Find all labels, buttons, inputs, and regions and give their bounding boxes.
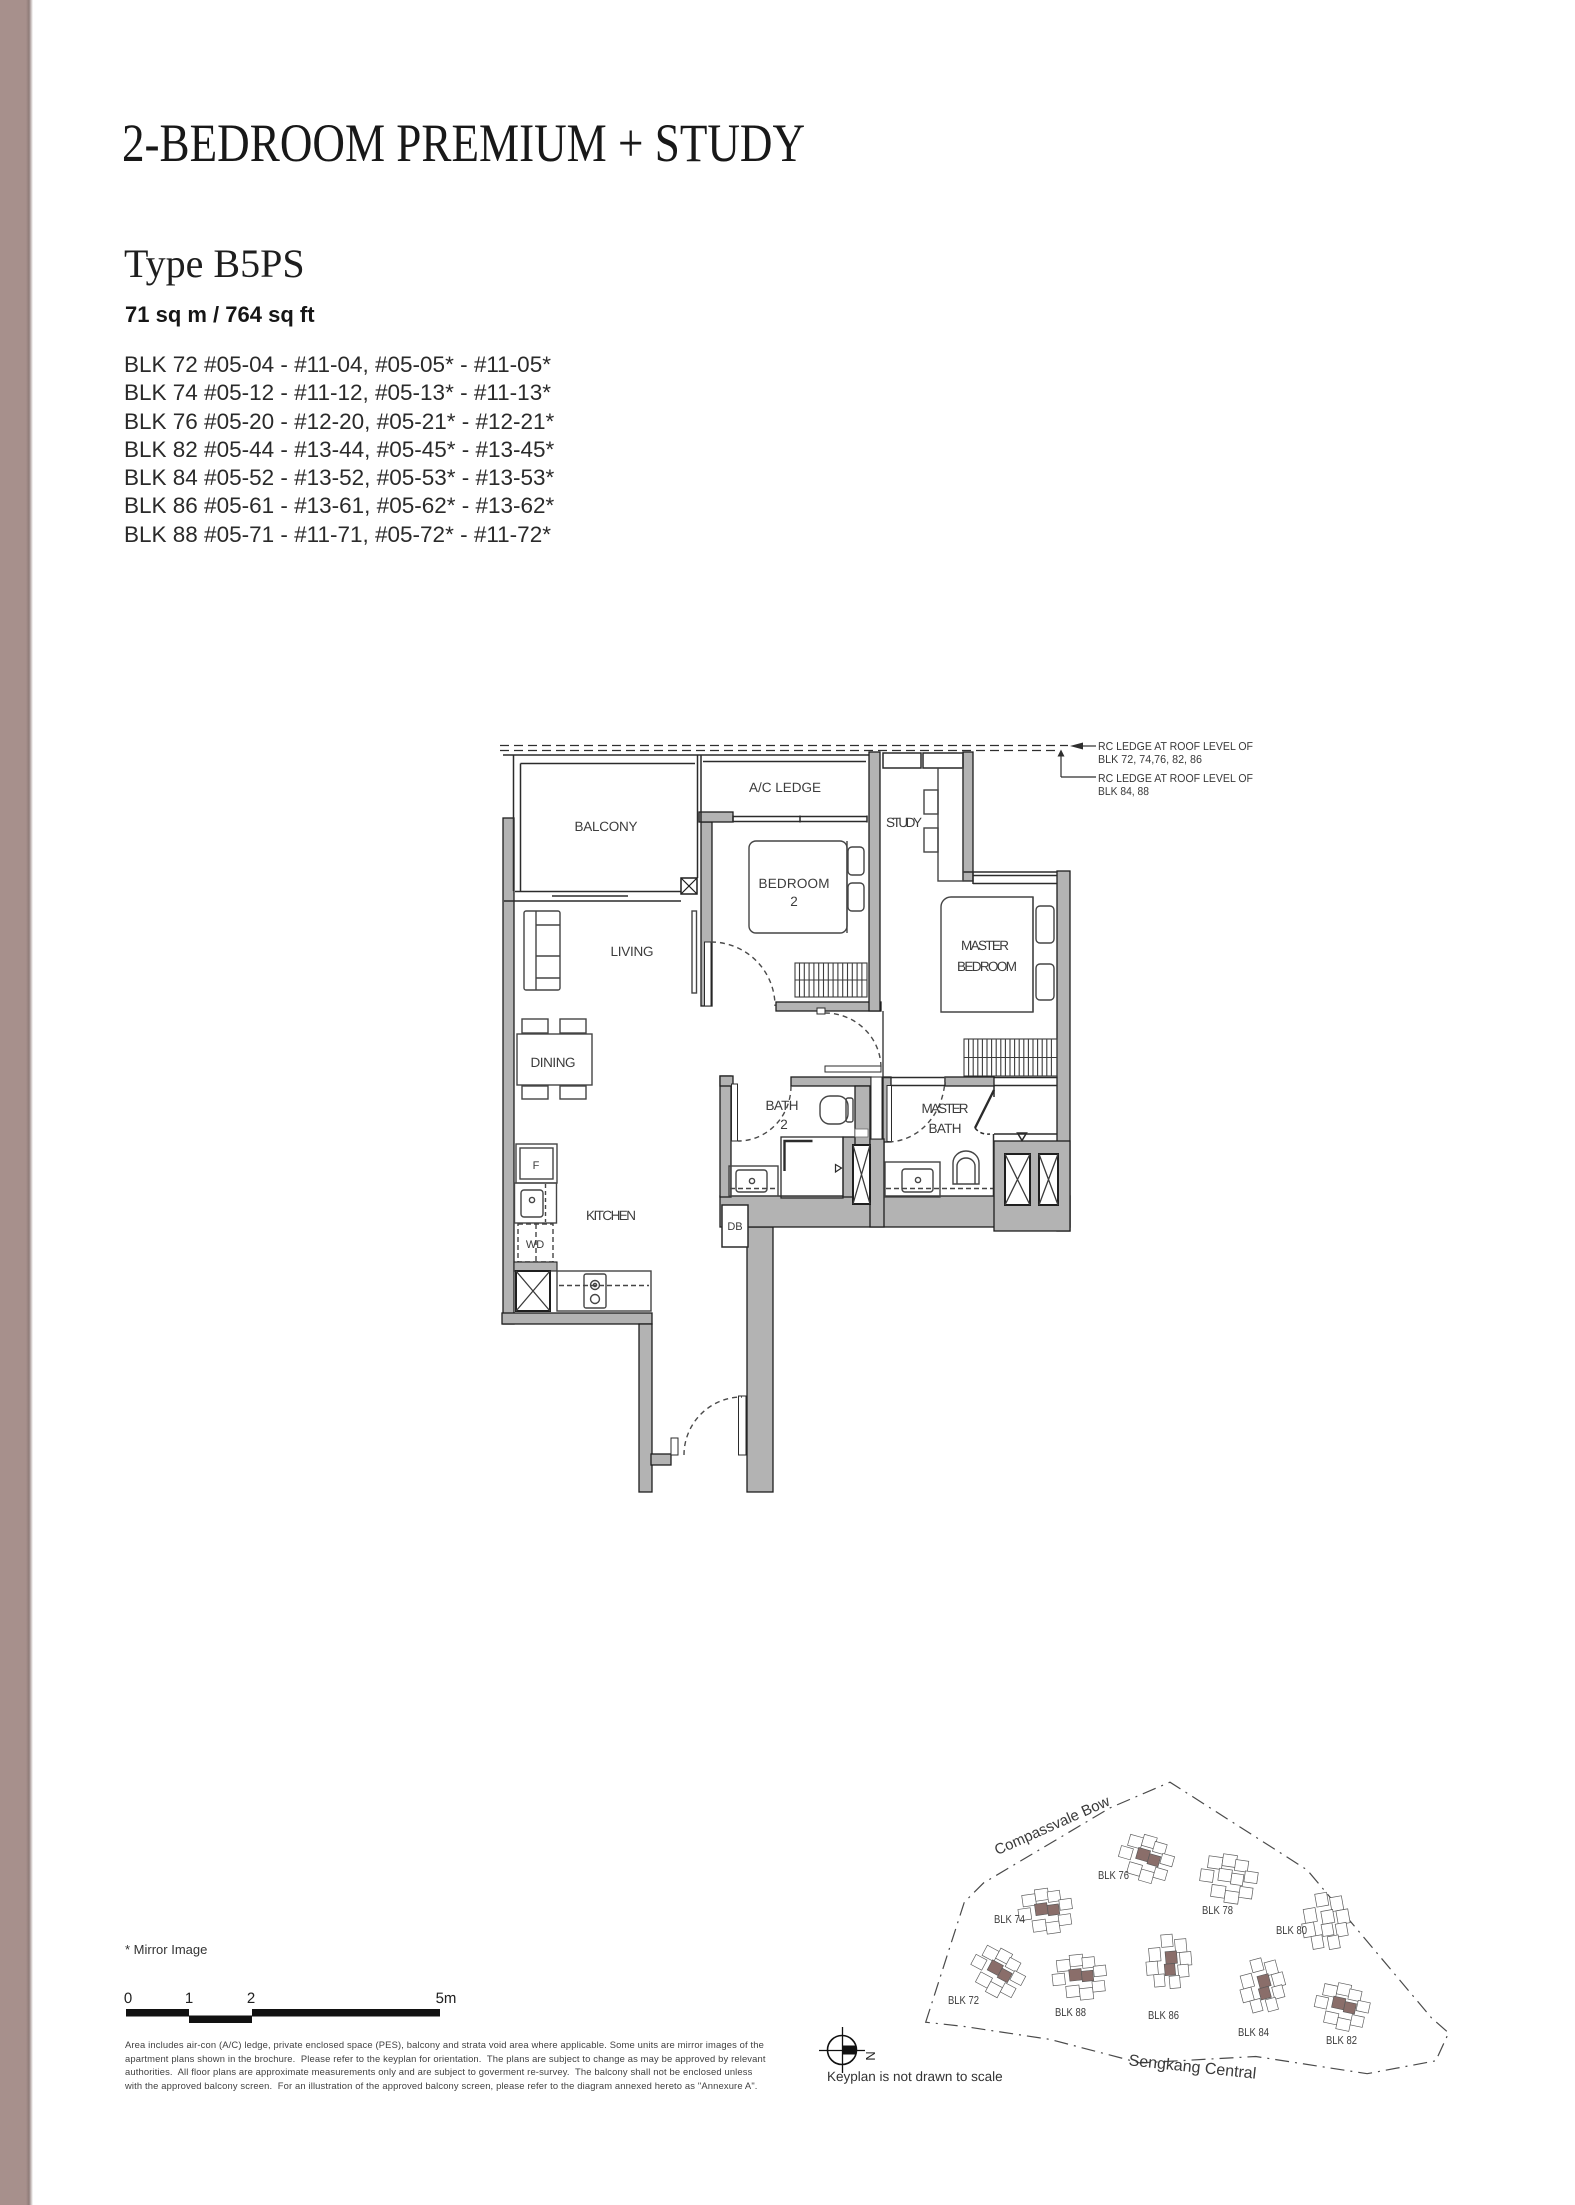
svg-text:DINING: DINING xyxy=(531,1055,576,1070)
svg-text:BEDROOM: BEDROOM xyxy=(759,876,830,891)
svg-text:MASTER: MASTER xyxy=(922,1101,969,1116)
svg-text:BLK 72, 74,76, 82, 86: BLK 72, 74,76, 82, 86 xyxy=(1098,754,1202,766)
svg-text:2: 2 xyxy=(780,1117,788,1132)
svg-text:MASTER: MASTER xyxy=(961,938,1009,953)
svg-text:BLK 74: BLK 74 xyxy=(994,1914,1025,1926)
svg-text:RC LEDGE AT ROOF LEVEL OF: RC LEDGE AT ROOF LEVEL OF xyxy=(1098,773,1253,785)
svg-text:BLK 76: BLK 76 xyxy=(1098,1870,1129,1882)
svg-text:DB: DB xyxy=(727,1221,742,1233)
svg-text:BEDROOM: BEDROOM xyxy=(957,959,1017,974)
svg-text:BATH: BATH xyxy=(766,1098,799,1113)
svg-text:STUDY: STUDY xyxy=(886,815,922,830)
svg-text:2: 2 xyxy=(247,1990,255,2007)
svg-text:N: N xyxy=(863,2051,878,2060)
svg-text:BLK 72: BLK 72 xyxy=(948,1995,979,2007)
svg-text:BLK 84: BLK 84 xyxy=(1238,2027,1269,2039)
svg-text:1: 1 xyxy=(185,1990,193,2007)
svg-text:F: F xyxy=(533,1160,540,1172)
svg-text:BLK 86: BLK 86 xyxy=(1148,2010,1179,2022)
svg-text:2: 2 xyxy=(790,894,798,909)
svg-text:5m: 5m xyxy=(436,1990,457,2007)
svg-text:BALCONY: BALCONY xyxy=(575,819,638,834)
svg-text:0: 0 xyxy=(124,1990,132,2007)
svg-text:Keyplan is not drawn to scale: Keyplan is not drawn to scale xyxy=(827,2069,1003,2084)
svg-text:BLK 82: BLK 82 xyxy=(1326,2035,1357,2047)
svg-text:BLK 84, 88: BLK 84, 88 xyxy=(1098,786,1149,798)
svg-text:RC LEDGE AT ROOF LEVEL OF: RC LEDGE AT ROOF LEVEL OF xyxy=(1098,741,1253,753)
svg-text:A/C LEDGE: A/C LEDGE xyxy=(749,780,821,795)
svg-text:BLK 78: BLK 78 xyxy=(1202,1905,1233,1917)
svg-text:WD: WD xyxy=(526,1239,544,1251)
svg-text:Compassvale Bow: Compassvale Bow xyxy=(992,1793,1113,1859)
svg-text:BLK 88: BLK 88 xyxy=(1055,2007,1086,2019)
svg-text:KITCHEN: KITCHEN xyxy=(586,1208,636,1223)
svg-text:Sengkang Central: Sengkang Central xyxy=(1128,2052,1257,2082)
svg-text:BATH: BATH xyxy=(929,1121,962,1136)
svg-text:BLK 80: BLK 80 xyxy=(1276,1925,1307,1937)
svg-text:LIVING: LIVING xyxy=(611,944,654,959)
